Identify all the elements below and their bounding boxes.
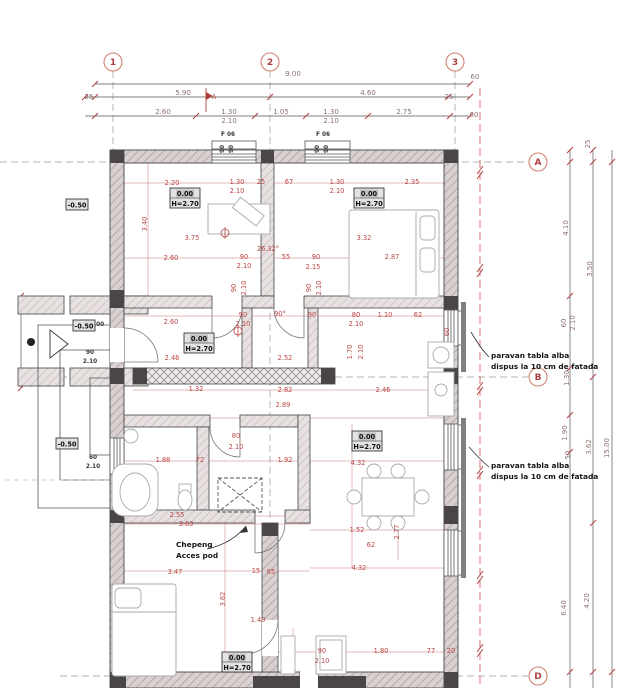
dim-label: 1.90 (561, 425, 569, 441)
dim-label: 4.32 (351, 459, 366, 467)
floor-level-value: 0.00 (177, 190, 194, 198)
entrance-door-gap (110, 328, 124, 362)
dim-label: 1.30 (230, 178, 245, 186)
dim-label: 90 (239, 311, 247, 319)
dim-label: 20 (447, 647, 455, 655)
dim-label: 90 (318, 647, 326, 655)
dim-label: 5.90 (175, 89, 191, 97)
dim-label: 6.40 (560, 600, 568, 616)
dim-label: 1.92 (278, 456, 293, 464)
grid-bubble-label: 1 (110, 58, 116, 68)
dim-label: 2.89 (276, 401, 291, 409)
dim-label: 2.10 (330, 187, 345, 195)
dim-label: 90 (240, 253, 248, 261)
dim-label: 1.05 (273, 108, 289, 116)
terrace-outline (38, 325, 110, 508)
dim-label: 2.10 (221, 117, 237, 125)
dim-label: 15 (252, 567, 260, 575)
dim-label: 1.30 (563, 370, 571, 386)
dim-label: 2.46 (165, 354, 180, 362)
dim-label: 2.46 (376, 386, 391, 394)
dim-label: 90 (230, 284, 238, 292)
dim-label: 2.87 (385, 253, 400, 261)
dim-label: 4.60 (360, 89, 376, 97)
dim-label: 2.77 (393, 525, 401, 540)
dim-label: 3.62 (219, 592, 227, 607)
dim-label: 85 (267, 568, 275, 576)
dim-label: 77 (427, 647, 435, 655)
dim-label: 90 (220, 145, 226, 153)
pillow (420, 248, 435, 272)
chair (367, 464, 381, 478)
annotation-note: Chepeng (176, 540, 213, 549)
floor-plan-drawing: 9.0060255.904.60252.601.302.101.051.302.… (0, 0, 640, 688)
annotation-note: paravan tabla alba (491, 461, 569, 470)
dim-label: 2.10 (237, 262, 252, 270)
dim-label: 4.20 (583, 593, 591, 609)
annotation-note: dispus la 10 cm de fatada (491, 362, 598, 371)
dim-label: 90 (315, 145, 321, 153)
grid-bubble-label: A (535, 158, 542, 168)
room-height-value: H=2.70 (355, 200, 383, 208)
dim-label: 90 (324, 145, 330, 153)
dim-label: 1.30 (221, 108, 237, 116)
wall-right (444, 150, 458, 688)
annotation-note: dispus la 10 cm de fatada (491, 472, 598, 481)
dim-label: 15.00 (603, 438, 611, 458)
dim-label: 25 (257, 178, 265, 186)
elevation-value: -0.50 (74, 323, 93, 331)
dim-label: 3.63 (179, 520, 194, 528)
dim-label: 3.32 (357, 234, 372, 242)
chair (367, 516, 381, 530)
dim-label: 90 (86, 350, 94, 356)
hall-beam (133, 368, 335, 384)
pillow (115, 588, 141, 608)
dim-label: 3.47 (168, 568, 183, 576)
dim-label: 2.10 (86, 464, 100, 470)
dim-label: 2.10 (236, 320, 251, 328)
dim-label: 1.88 (156, 456, 171, 464)
dim-label: 2.10 (315, 657, 330, 665)
dim-label: 1.10 (378, 311, 393, 319)
dim-label: 1.52 (350, 526, 365, 534)
wall-top (110, 150, 458, 163)
dim-label: F 06 (316, 132, 330, 138)
dim-label: 3.75 (185, 234, 200, 242)
furniture (112, 197, 454, 676)
dim-label: 2.10 (357, 345, 365, 360)
annotation-note: paravan tabla alba (491, 351, 569, 360)
dim-label: 2.60 (155, 108, 171, 116)
dim-label: 2.55 (170, 511, 185, 519)
dim-label: 2.10 (240, 281, 248, 296)
dim-label: 60 (560, 319, 568, 328)
attic-hatch (218, 478, 262, 512)
dim-label: 2.82 (278, 386, 293, 394)
dim-label: 2.52 (278, 354, 293, 362)
dim-label: 62 (414, 311, 422, 319)
floor-level-value: 0.00 (361, 190, 378, 198)
dim-label: 1.30 (323, 108, 339, 116)
dim-label: 1.70 (346, 345, 354, 360)
dim-label: 2.10 (349, 320, 364, 328)
dim-label: 2.10 (315, 281, 323, 296)
dim-label: 50 (564, 451, 572, 460)
dim-label: 4.10 (562, 220, 570, 236)
chair (391, 464, 405, 478)
dim-label: 90 (312, 253, 320, 261)
eave-offset-line (477, 88, 483, 688)
door-leaf (281, 636, 295, 674)
dim-label: 60 (471, 73, 480, 81)
dim-label: 25 (445, 93, 454, 101)
sink (124, 429, 138, 443)
dim-label: 2.35 (405, 178, 420, 186)
grid-bubble-label: D (534, 672, 541, 682)
bottom-door-gap (300, 672, 318, 688)
floor-level-value: 0.00 (229, 654, 246, 662)
dim-label: 2.10 (569, 315, 577, 331)
dim-label: 60 (443, 328, 451, 336)
dim-label: 3.62 (585, 439, 593, 455)
dim-label: 2.75 (396, 108, 412, 116)
room-height-value: H=2.70 (353, 443, 381, 451)
paravan-panel (461, 302, 466, 578)
pillow (420, 216, 435, 240)
dim-label: 2.20 (165, 179, 180, 187)
entrance-arrow (50, 330, 68, 358)
dim-label: A (212, 93, 217, 101)
dim-label: 72 (196, 456, 204, 464)
dim-label: 9.00 (285, 70, 301, 78)
room-height-value: H=2.70 (171, 200, 199, 208)
floor-level-value: 0.00 (191, 335, 208, 343)
dim-label: 26.32° (257, 245, 279, 253)
dim-label: 1.32 (189, 385, 204, 393)
floor-level-value: 0.00 (359, 433, 376, 441)
dim-label: 90 (229, 145, 235, 153)
dim-label: 2.60 (164, 318, 179, 326)
dim-label: 2.10 (229, 443, 244, 451)
dim-label: 3.40 (141, 217, 149, 232)
dim-label: 80 (232, 432, 240, 440)
dim-label: 3.50 (586, 261, 594, 277)
dim-label: 25 (584, 140, 592, 149)
dim-label: 2.10 (230, 187, 245, 195)
dim-label: F 06 (221, 132, 235, 138)
dim-label: 2.60 (164, 254, 179, 262)
dim-label: 2.15 (306, 263, 321, 271)
wc-bowl (178, 490, 192, 510)
dim-label: 2.10 (83, 359, 97, 365)
dim-label: 4.32 (352, 564, 367, 572)
dim-label: 80 (352, 311, 360, 319)
dim-label: 60 (89, 455, 97, 461)
dim-label: 25 (85, 93, 94, 101)
dining-table (362, 478, 414, 516)
dim-label: 55 (282, 253, 290, 261)
grid-bubble-label: 3 (452, 58, 458, 68)
grid-bubble-label: B (535, 373, 542, 383)
leader-arrowhead (239, 526, 248, 533)
interior-door-gap (262, 620, 278, 656)
dim-label: 1.30 (330, 178, 345, 186)
dim-label: 1.80 (374, 647, 389, 655)
dim-label: 1.40 (251, 616, 266, 624)
grid-bubble-label: 2 (267, 58, 273, 68)
entrance-steps (18, 296, 148, 386)
dim-label: 67 (285, 178, 293, 186)
dim-label: 90 (305, 284, 313, 292)
room-height-value: H=2.70 (223, 664, 251, 672)
dim-label: 90 (308, 311, 316, 319)
elevation-value: -0.50 (57, 441, 76, 449)
chair (347, 490, 361, 504)
room-height-value: H=2.70 (185, 345, 213, 353)
dim-label: 2.10 (323, 117, 339, 125)
annotation-note: Acces pod (176, 551, 218, 560)
porch-column (27, 338, 35, 346)
dim-label: 90° (274, 310, 286, 318)
chair (415, 490, 429, 504)
elevation-value: -0.50 (67, 202, 86, 210)
dim-label: 60 (470, 111, 479, 119)
dim-label: 62 (367, 541, 375, 549)
